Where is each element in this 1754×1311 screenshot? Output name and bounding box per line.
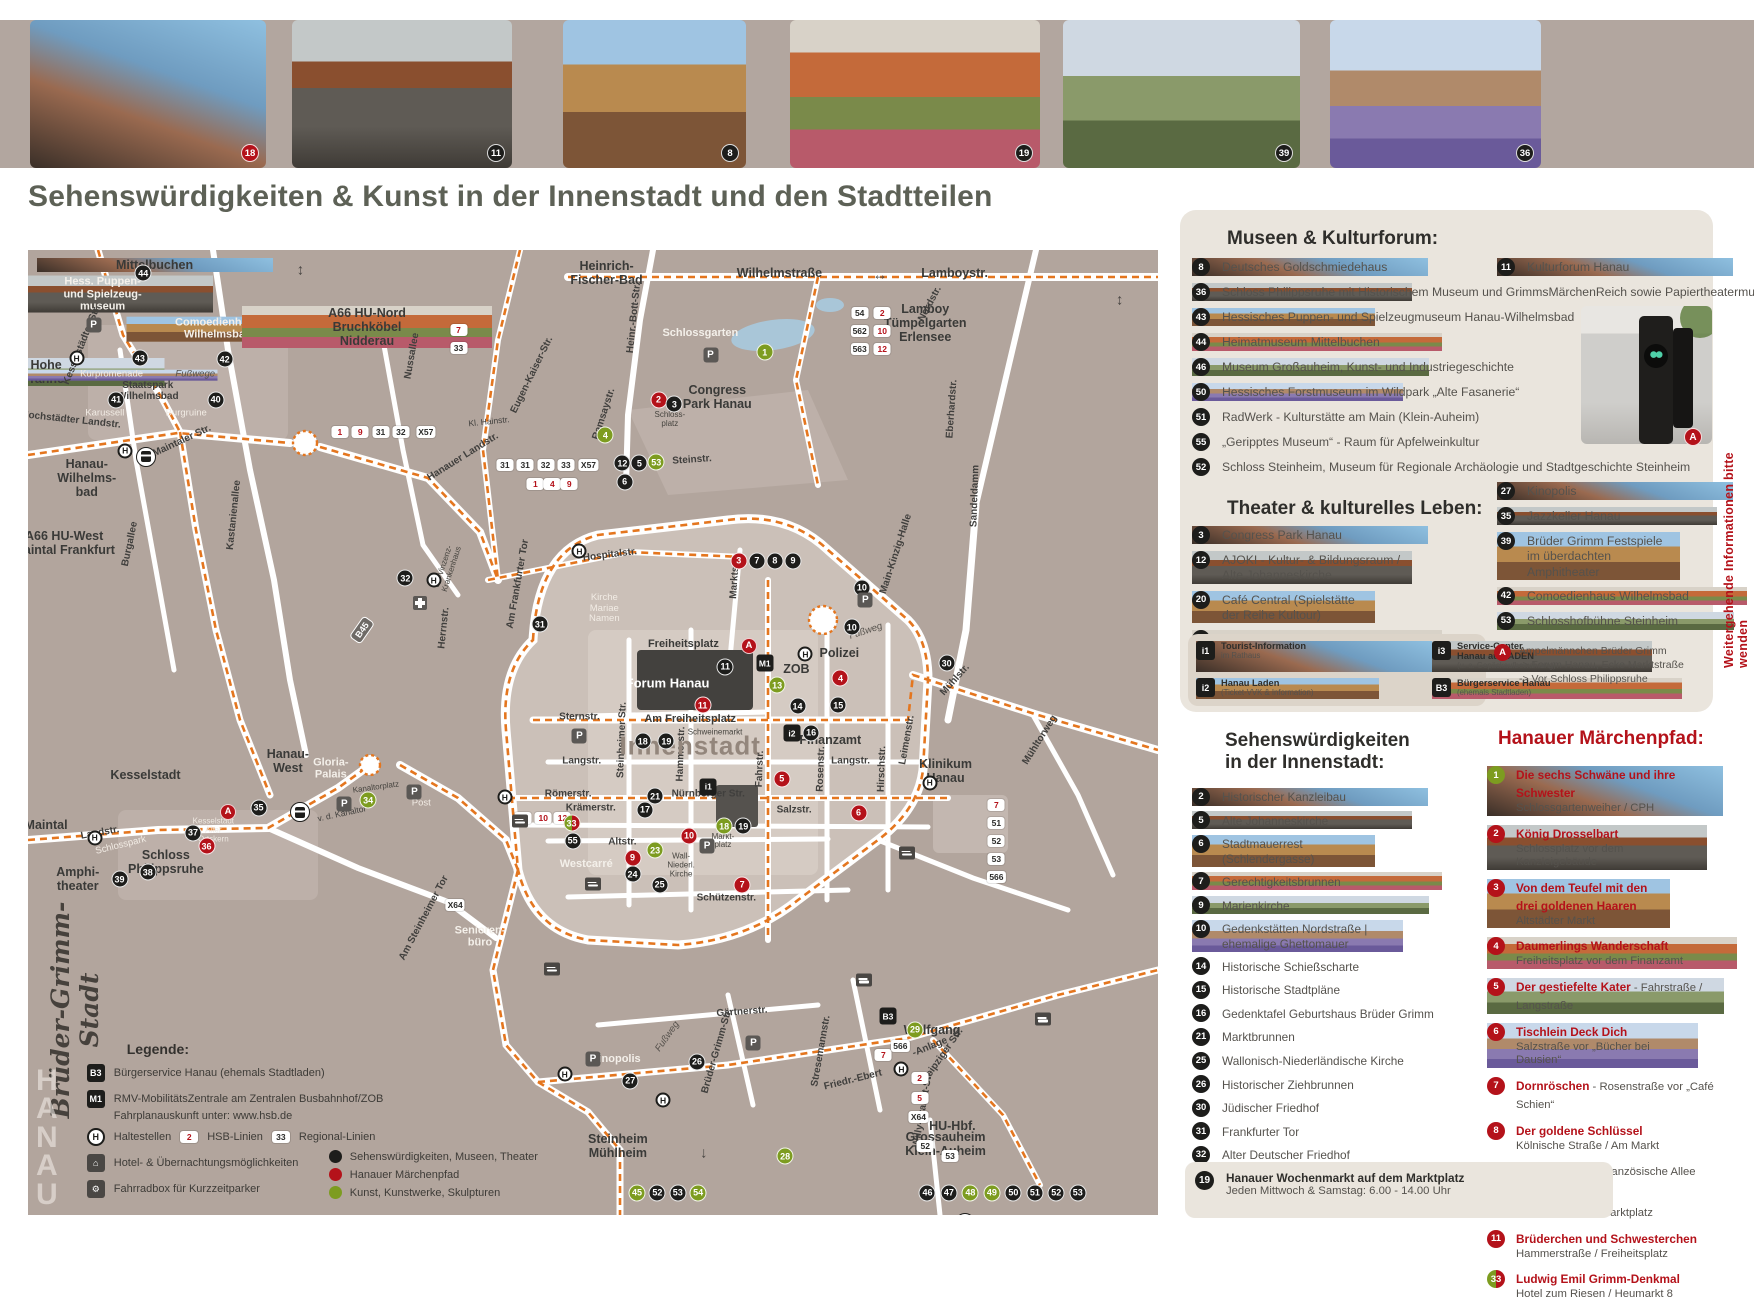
map-marker: 52 — [988, 835, 1005, 847]
maerchenpfad-item-number: 33 — [1487, 1270, 1505, 1288]
sight-item-number: 30 — [1192, 1099, 1210, 1117]
wochenmarkt-box: 19 Hanauer Wochenmarkt auf dem Marktplat… — [1185, 1162, 1613, 1218]
museum-item-number: 43 — [1192, 308, 1210, 326]
map-marker: 31 — [496, 459, 513, 471]
map-marker: 5 — [911, 1092, 928, 1104]
sight-item: 10 Gedenkstätten Nordstraße | ehemalige … — [1192, 920, 1403, 952]
legend-dot-black-label: Sehenswürdigkeiten, Museen, Theater — [350, 1151, 538, 1163]
map-marker: 10 — [535, 812, 552, 824]
sight-item-number: 7 — [1192, 872, 1210, 890]
museums-section-title: Museen & Kulturforum: — [1227, 228, 1438, 250]
map-marker: 38 — [139, 864, 156, 881]
map-marker: 12 — [614, 455, 631, 472]
legend-halte-label: Haltestellen — [114, 1131, 171, 1143]
map-marker: 4 — [544, 478, 561, 490]
map-marker: 566 — [891, 1040, 909, 1052]
map-marker: 6 — [850, 804, 867, 821]
map-marker: 39 — [111, 871, 128, 888]
traffic-light-housing — [1639, 316, 1673, 444]
theater-item-label: Congress Park Hanau — [1222, 526, 1342, 543]
map-marker: 10 — [874, 325, 891, 337]
map-marker: 47 — [940, 1184, 957, 1201]
maerchenpfad-item: 5 Der gestiefelte Kater - Fahrstraße / L… — [1487, 978, 1724, 1014]
photo-schloss-philippsruhe: 36 — [1330, 20, 1541, 168]
sight-item: 6 Stadtmauerrest (Schlendergasse) — [1192, 835, 1375, 867]
museum-item-number: 11 — [1497, 258, 1515, 276]
map-marker: 41 — [108, 391, 125, 408]
photo-forum-hanau-kutsche: 11 — [292, 20, 512, 168]
museums-theater-panel: Museen & Kulturforum: 8 Deutsches Goldsc… — [1180, 210, 1713, 712]
map-marker: 7 — [875, 1049, 892, 1061]
mobility-center-icon: M1 — [87, 1090, 105, 1108]
red-dot-icon — [329, 1168, 342, 1181]
map-marker: 13 — [769, 677, 786, 694]
museum-item: 11 Kulturforum Hanau — [1497, 258, 1733, 276]
map-marker: 23 — [647, 842, 664, 859]
theater-item: 53 Schlosshofbühne Steinheim — [1497, 612, 1734, 630]
map-marker: 54 — [851, 307, 868, 319]
map-marker: 54 — [690, 1184, 707, 1201]
map-marker: 7 — [450, 324, 467, 336]
map-marker: 19 — [658, 733, 675, 750]
sight-item-number: 31 — [1192, 1122, 1210, 1140]
photo-strip: 18 11 8 19 39 36 — [0, 20, 1754, 168]
map-marker: 3 — [666, 396, 683, 413]
sight-item-label: Gedenktafel Geburtshaus Brüder Grimm — [1222, 1004, 1434, 1021]
photo-number-badge: 39 — [1275, 144, 1293, 162]
maerchenpfad-item-title: Der goldene Schlüssel — [1516, 1124, 1643, 1138]
sight-item-label: Historische Stadtpläne — [1222, 981, 1340, 998]
map-marker: 30 — [938, 655, 955, 672]
sights-list: 2 Historischer Kanzleibau 5 Alte Johanne… — [1180, 788, 1476, 1164]
map-legend: Legende: B3 Bürgerservice Hanau (ehemals… — [87, 1041, 562, 1206]
hotel-icon: ⌂ — [87, 1154, 105, 1172]
museum-item: 52 Schloss Steinheim, Museum für Regiona… — [1192, 458, 1707, 476]
map-marker: X57 — [416, 426, 435, 438]
map-marker: 7 — [734, 876, 751, 893]
photo-wochenmarkt: 19 — [790, 20, 1040, 168]
sight-item-number: 16 — [1192, 1004, 1210, 1022]
sight-item-label: Alte Johanneskirche — [1222, 811, 1328, 828]
map-marker: 42 — [216, 351, 233, 368]
museum-item-number: 46 — [1192, 358, 1210, 376]
legend-hsb-label: HSB-Linien — [207, 1131, 263, 1143]
theater-item: 39 Brüder Grimm Festspiele im überdachte… — [1497, 532, 1680, 580]
theater-item-label: Café Central (Spielstätte der Reihe Kult… — [1222, 591, 1375, 624]
map-marker: 26 — [688, 1053, 705, 1070]
sight-item-number: 25 — [1192, 1052, 1210, 1070]
museum-item-number: 8 — [1192, 258, 1210, 276]
map-marker: 33 — [557, 459, 574, 471]
ampelmaennchen-note: A Ampelmännchen Brüder Grimm -> Forum Ha… — [1494, 644, 1684, 687]
map-marker: 16 — [803, 724, 820, 741]
map-marker — [413, 596, 427, 610]
maerchenpfad-item-title: Dornröschen — [1516, 1079, 1589, 1093]
haltestelle-icon: H — [87, 1128, 105, 1146]
map-marker: B45 — [349, 616, 375, 645]
map-marker: ↕ — [1116, 292, 1124, 309]
map-marker: i2 — [783, 725, 800, 742]
info-entry-icon: B3 — [1432, 678, 1451, 697]
map-marker — [136, 447, 156, 467]
maerchenpfad-item-number: 8 — [1487, 1122, 1505, 1140]
city-map: MittelbuchenHess. Puppen- und Spielzeug-… — [28, 250, 1158, 1215]
map-marker: 51 — [1026, 1184, 1043, 1201]
maerchenpfad-item-number: 6 — [1487, 1023, 1505, 1041]
maerchenpfad-item-location: Schlossplatz vor dem Kanzleigebäude — [1516, 843, 1707, 870]
map-marker: 27 — [622, 1072, 639, 1089]
theater-item: 35 Jazzkeller Hanau — [1497, 507, 1717, 525]
theater-item: 3 Congress Park Hanau — [1192, 526, 1428, 544]
map-marker: 44 — [135, 265, 152, 282]
maerchenpfad-item: 8 Der goldene Schlüssel Kölnische Straße… — [1487, 1122, 1754, 1154]
sight-item-label: Gedenkstätten Nordstraße | ehemalige Ghe… — [1222, 920, 1403, 952]
info-entry: i2 Hanau Laden (Ticket-VVK & Information… — [1196, 678, 1379, 699]
map-marker: P — [858, 593, 873, 608]
map-marker: H — [426, 573, 441, 588]
theater-item-number: 53 — [1497, 612, 1515, 630]
map-marker: 2 — [874, 307, 891, 319]
map-marker: 52 — [1048, 1184, 1065, 1201]
map-marker: 32 — [397, 570, 414, 587]
museum-item-number: 36 — [1192, 283, 1210, 301]
map-marker: 32 — [537, 459, 554, 471]
maerchenpfad-item-location: Hammerstraße / Freiheitsplatz — [1516, 1248, 1697, 1262]
map-marker: 53 — [942, 1150, 959, 1162]
museum-item: 44 Heimatmuseum Mittelbuchen — [1192, 333, 1442, 351]
map-marker: 37 — [184, 824, 201, 841]
theater-list-col2: 27 Kinopolis 35 Jazzkeller Hanau 39 Brüd… — [1497, 482, 1711, 637]
map-marker: H — [497, 790, 512, 805]
theater-item-label: Kinopolis — [1527, 482, 1576, 499]
bike-box-icon: ⚙ — [87, 1180, 105, 1198]
legend-m1-subline: Fahrplanauskunft unter: www.hsb.de — [114, 1110, 562, 1122]
sight-item: 31 Frankfurter Tor — [1192, 1122, 1476, 1140]
map-marker: 33 — [450, 342, 467, 354]
map-marker: 566 — [987, 871, 1005, 883]
map-marker — [856, 974, 872, 987]
museum-item-number: 52 — [1192, 458, 1210, 476]
sight-item: 15 Historische Stadtpläne — [1192, 981, 1476, 999]
museum-item-number: 44 — [1192, 333, 1210, 351]
map-marker: 51 — [988, 817, 1005, 829]
map-marker: 3 — [730, 552, 747, 569]
maerchenpfad-item-number: 7 — [1487, 1077, 1505, 1095]
legend-bike-label: Fahrradbox für Kurzzeitparker — [114, 1183, 260, 1195]
map-marker: 31 — [531, 616, 548, 633]
map-marker: 46 — [919, 1184, 936, 1201]
theater-item-number: 39 — [1497, 532, 1515, 550]
info-entry: i1 Tourist-Information im Rathaus — [1196, 641, 1432, 672]
theater-section-title: Theater & kulturelles Leben: — [1227, 498, 1483, 520]
photo-number-badge: 19 — [1015, 144, 1033, 162]
sight-item-label: Historischer Ziehbrunnen — [1222, 1075, 1354, 1092]
sight-item: 26 Historischer Ziehbrunnen — [1192, 1075, 1476, 1093]
map-marker: 40 — [207, 391, 224, 408]
sight-item-label: Stadtmauerrest (Schlendergasse) — [1222, 835, 1375, 867]
sight-item: 5 Alte Johanneskirche — [1192, 811, 1412, 829]
map-marker: 9 — [785, 552, 802, 569]
sight-item-number: 6 — [1192, 835, 1210, 853]
sight-item-label: Marienkirche — [1222, 896, 1290, 913]
theater-item-label: Jazzkeller Hanau — [1527, 507, 1620, 524]
sight-item: 9 Marienkirche — [1192, 896, 1429, 914]
sight-item-label: Historischer Kanzleibau — [1222, 788, 1346, 805]
museum-item-number: 50 — [1192, 383, 1210, 401]
map-marker: 10 — [681, 827, 698, 844]
map-marker: 55 — [564, 832, 581, 849]
maerchenpfad-item: 11 Brüderchen und Schwesterchen Hammerst… — [1487, 1230, 1754, 1262]
map-marker: B3 — [879, 1008, 896, 1025]
map-marker: P — [746, 1036, 761, 1051]
photo-goldschmiedehaus: 8 — [563, 20, 746, 168]
map-marker: 7 — [988, 799, 1005, 811]
sight-item-number: 5 — [1192, 811, 1210, 829]
photo-number-badge: 36 — [1516, 144, 1534, 162]
museum-item-number: 55 — [1192, 433, 1210, 451]
wochenmarkt-title: Hanauer Wochenmarkt auf dem Marktplatz — [1226, 1171, 1464, 1185]
maerchenpfad-item: 7 Dornröschen - Rosenstraße vor „Café Sc… — [1487, 1077, 1754, 1113]
info-entry-icon: i2 — [1196, 678, 1215, 697]
map-marker: P — [86, 318, 101, 333]
map-marker: 24 — [624, 866, 641, 883]
theater-item-number: 3 — [1192, 526, 1210, 544]
sights-section-title: Sehenswürdigkeiten in der Innenstadt: — [1225, 730, 1476, 774]
sight-item: 14 Historische Schießscharte — [1192, 957, 1476, 975]
map-marker — [1035, 1013, 1051, 1026]
map-marker: H — [922, 775, 937, 790]
maerchenpfad-item-location: Hotel zum Riesen / Heumarkt 8 — [1516, 1288, 1680, 1302]
maerchenpfad-item-title: Brüderchen und Schwesterchen — [1516, 1232, 1697, 1246]
buergerservice-icon: B3 — [87, 1064, 105, 1082]
museum-item: 50 Hessisches Forstmuseum im Wildpark „A… — [1192, 383, 1403, 401]
sight-item: 21 Marktbrunnen — [1192, 1028, 1476, 1046]
map-marker: 11 — [717, 658, 734, 675]
map-marker: 9 — [352, 426, 369, 438]
theater-item-label: AJOKI - Kultur- & Bildungsraum / Alte Jo… — [1222, 551, 1412, 584]
maerchenpfad-item-number: 1 — [1487, 766, 1505, 784]
ampelmaennchen-photo — [1581, 306, 1712, 444]
museum-item-label: Heimatmuseum Mittelbuchen — [1222, 333, 1380, 350]
map-marker: A — [220, 804, 236, 820]
map-marker: 1 — [331, 426, 348, 438]
maerchenpfad-item: 2 König Drosselbart Schlossplatz vor dem… — [1487, 825, 1707, 870]
map-marker: 31 — [517, 459, 534, 471]
map-marker: P — [703, 348, 718, 363]
map-marker: 35 — [250, 799, 267, 816]
theater-item: 12 AJOKI - Kultur- & Bildungsraum / Alte… — [1192, 551, 1412, 584]
sight-item-number: 15 — [1192, 981, 1210, 999]
map-marker: 33 — [563, 815, 580, 832]
map-marker: ↕ — [297, 262, 305, 279]
map-marker: 1 — [756, 344, 773, 361]
sight-item: 16 Gedenktafel Geburtshaus Brüder Grimm — [1192, 1004, 1476, 1022]
map-marker: 34 — [360, 792, 377, 809]
sight-item-number: 10 — [1192, 920, 1210, 938]
sight-item-number: 2 — [1192, 788, 1210, 806]
museum-item-label: Hessisches Puppen- und Spielzeugmuseum H… — [1222, 308, 1574, 325]
legend-dot-green-label: Kunst, Kunstwerke, Skulpturen — [350, 1187, 500, 1199]
map-marker: 2 — [650, 391, 667, 408]
maerchenpfad-item-title: Ludwig Emil Grimm-Denkmal — [1516, 1272, 1680, 1286]
sight-item-label: Alter Deutscher Friedhof — [1222, 1146, 1350, 1163]
map-marker: 43 — [131, 350, 148, 367]
photo-amphitheater-park: 39 — [1063, 20, 1300, 168]
map-marker: 52 — [649, 1184, 666, 1201]
map-marker: H — [118, 443, 133, 458]
wochenmarkt-number: 19 — [1195, 1171, 1214, 1190]
map-marker: 15 — [830, 697, 847, 714]
maerchenpfad-item-title: Tischlein Deck Dich — [1516, 1025, 1627, 1039]
museum-item: 43 Hessisches Puppen- und Spielzeugmuseu… — [1192, 308, 1375, 326]
info-entry-sub: im Rathaus — [1221, 651, 1306, 660]
maerchenpfad-item-title: Daumerlings Wanderschaft — [1516, 939, 1668, 953]
black-dot-icon — [329, 1150, 342, 1163]
regional-line-badge: 33 — [272, 1131, 290, 1143]
hsb-line-badge: 2 — [180, 1131, 198, 1143]
maerchenpfad-list: 1 Die sechs Schwäne und ihre Schwester S… — [1478, 766, 1754, 1302]
legend-hotel-label: Hotel- & Übernachtungsmöglichkeiten — [114, 1157, 299, 1169]
map-marker: 5 — [773, 770, 790, 787]
maerchenpfad-item-title: Von dem Teufel mit den drei goldenen Haa… — [1516, 881, 1647, 913]
map-marker: 45 — [629, 1184, 646, 1201]
maerchenpfad-item-location: Freiheitsplatz vor dem Finanzamt — [1516, 955, 1683, 969]
maerchenpfad-item-number: 5 — [1487, 978, 1505, 996]
maerchenpfad-item-number: 3 — [1487, 879, 1505, 897]
museum-item-number: 51 — [1192, 408, 1210, 426]
map-marker: 52 — [917, 1140, 934, 1152]
map-marker: 563 — [851, 343, 869, 355]
theater-item-label: Schlosshofbühne Steinheim — [1527, 612, 1678, 629]
map-marker: 11 — [694, 697, 711, 714]
map-marker — [955, 1213, 975, 1215]
map-marker: 12 — [874, 343, 891, 355]
map-marker: 36 — [198, 838, 215, 855]
maerchenpfad-item-number: 4 — [1487, 937, 1505, 955]
museums-list-col2: 11 Kulturforum Hanau — [1497, 258, 1707, 283]
sight-item-number: 26 — [1192, 1075, 1210, 1093]
page-title: Sehenswürdigkeiten & Kunst in der Innens… — [28, 180, 993, 214]
maerchenpfad-item: 1 Die sechs Schwäne und ihre Schwester S… — [1487, 766, 1723, 816]
sight-item: 30 Jüdischer Friedhof — [1192, 1099, 1476, 1117]
maerchenpfad-item-location: Kölnische Straße / Am Markt — [1516, 1140, 1659, 1154]
sight-item-number: 9 — [1192, 896, 1210, 914]
map-marker: 8 — [766, 552, 783, 569]
map-marker — [899, 846, 915, 859]
map-marker: X57 — [579, 459, 598, 471]
sight-item-number: 14 — [1192, 957, 1210, 975]
map-marker: i1 — [700, 778, 717, 795]
legend-m1-label: RMV-MobilitätsZentrale am Zentralen Busb… — [114, 1093, 384, 1105]
museum-item: 46 Museum Großauheim, Kunst- und Industr… — [1192, 358, 1429, 376]
maerchenpfad-item-title: Die sechs Schwäne und ihre Schwester — [1516, 768, 1675, 800]
map-marker: H — [894, 1062, 909, 1077]
map-marker: 53 — [988, 853, 1005, 865]
legend-regional-label: Regional-Linien — [299, 1131, 375, 1143]
map-marker: 18 — [634, 733, 651, 750]
map-marker: ↓ — [700, 1145, 708, 1162]
sights-section: Sehenswürdigkeiten in der Innenstadt: 2 … — [1180, 730, 1476, 1170]
maerchenpfad-item: 3 Von dem Teufel mit den drei goldenen H… — [1487, 879, 1670, 929]
map-marker: A — [741, 638, 757, 654]
map-marker: M1 — [756, 655, 773, 672]
maerchenpfad-item-number: 2 — [1487, 825, 1505, 843]
map-marker: 4 — [832, 670, 849, 687]
info-entry-title: Hanau Laden — [1221, 678, 1313, 688]
map-marker: 31 — [372, 426, 389, 438]
info-entry-sub: (Ticket-VVK & Information) — [1221, 688, 1313, 697]
map-marker: 53 — [1069, 1184, 1086, 1201]
photo-number-badge: 11 — [487, 144, 505, 162]
sight-item: 25 Wallonisch-Niederländische Kirche — [1192, 1052, 1476, 1070]
traffic-light-side — [1673, 328, 1693, 428]
theater-item: 42 Comoedienhaus Wilhelmsbad — [1497, 587, 1747, 605]
museum-item-label: Museum Großauheim, Kunst- und Industrieg… — [1222, 358, 1514, 375]
map-marker: 53 — [648, 454, 665, 471]
maerchenpfad-item: 4 Daumerlings Wanderschaft Freiheitsplat… — [1487, 937, 1737, 969]
theater-item-number: 12 — [1192, 551, 1210, 569]
legend-title: Legende: — [127, 1041, 562, 1057]
green-dot-icon — [329, 1186, 342, 1199]
maerchenpfad-item-location: Schlossgartenweiher / CPH — [1516, 802, 1723, 816]
info-entry-sub: (ehemals Stadtladen) — [1457, 688, 1551, 697]
maerchenpfad-section: Hanauer Märchenpfad: 1 Die sechs Schwäne… — [1478, 728, 1754, 1311]
legend-dot-red-label: Hanauer Märchenpfad — [350, 1169, 459, 1181]
museum-item: 8 Deutsches Goldschmiedehaus — [1192, 258, 1428, 276]
map-marker: H — [87, 830, 102, 845]
maerchenpfad-item-location: Salzstraße vor „Bücher bei Dausien“ — [1516, 1041, 1698, 1068]
museum-item-label: Hessisches Forstmuseum im Wildpark „Alte… — [1222, 383, 1519, 400]
maerchenpfad-section-title: Hanauer Märchenpfad: — [1498, 728, 1754, 750]
photo-number-badge: 18 — [241, 144, 259, 162]
map-marker: H — [656, 1093, 671, 1108]
map-marker: H — [69, 351, 84, 366]
sight-item-label: Frankfurter Tor — [1222, 1122, 1299, 1139]
maerchenpfad-item-number: 11 — [1487, 1230, 1505, 1248]
map-marker — [512, 814, 528, 827]
map-marker: X64 — [446, 899, 465, 911]
maerchenpfad-item-title: Der gestiefelte Kater — [1516, 980, 1631, 994]
museum-item-label: Deutsches Goldschmiedehaus — [1222, 258, 1387, 275]
map-marker: P — [700, 839, 715, 854]
theater-item: 20 Café Central (Spielstätte der Reihe K… — [1192, 591, 1375, 624]
map-marker: 7 — [748, 552, 765, 569]
map-marker: 6 — [616, 473, 633, 490]
ampel-note-text: Ampelmännchen Brüder Grimm -> Forum Hana… — [1519, 644, 1684, 687]
green-figures-icon — [1648, 349, 1664, 363]
museum-item-label: RadWerk - Kulturstätte am Main (Klein-Au… — [1222, 408, 1479, 425]
map-marker — [290, 802, 310, 822]
map-marker: P — [337, 796, 352, 811]
map-marker: 49 — [983, 1184, 1000, 1201]
map-marker: 32 — [392, 426, 409, 438]
map-marker: 28 — [777, 1148, 794, 1165]
map-marker: 562 — [851, 325, 869, 337]
map-marker: 29 — [907, 1021, 924, 1038]
sight-item-label: Jüdischer Friedhof — [1222, 1099, 1319, 1116]
sight-item-label: Historische Schießscharte — [1222, 957, 1359, 974]
photo-number-badge: 8 — [721, 144, 739, 162]
museum-item-label: Kulturforum Hanau — [1527, 258, 1629, 275]
map-marker: P — [586, 1051, 601, 1066]
theater-item: 27 Kinopolis — [1497, 482, 1733, 500]
maerchenpfad-item-title: König Drosselbart — [1516, 827, 1618, 841]
maerchenpfad-item-location: Altstädter Markt — [1516, 915, 1670, 929]
map-marker — [544, 962, 560, 975]
map-marker: 9 — [561, 478, 578, 490]
sight-item: 7 Gerechtigkeitsbrunnen — [1192, 872, 1442, 890]
theater-item-number: 35 — [1497, 507, 1515, 525]
